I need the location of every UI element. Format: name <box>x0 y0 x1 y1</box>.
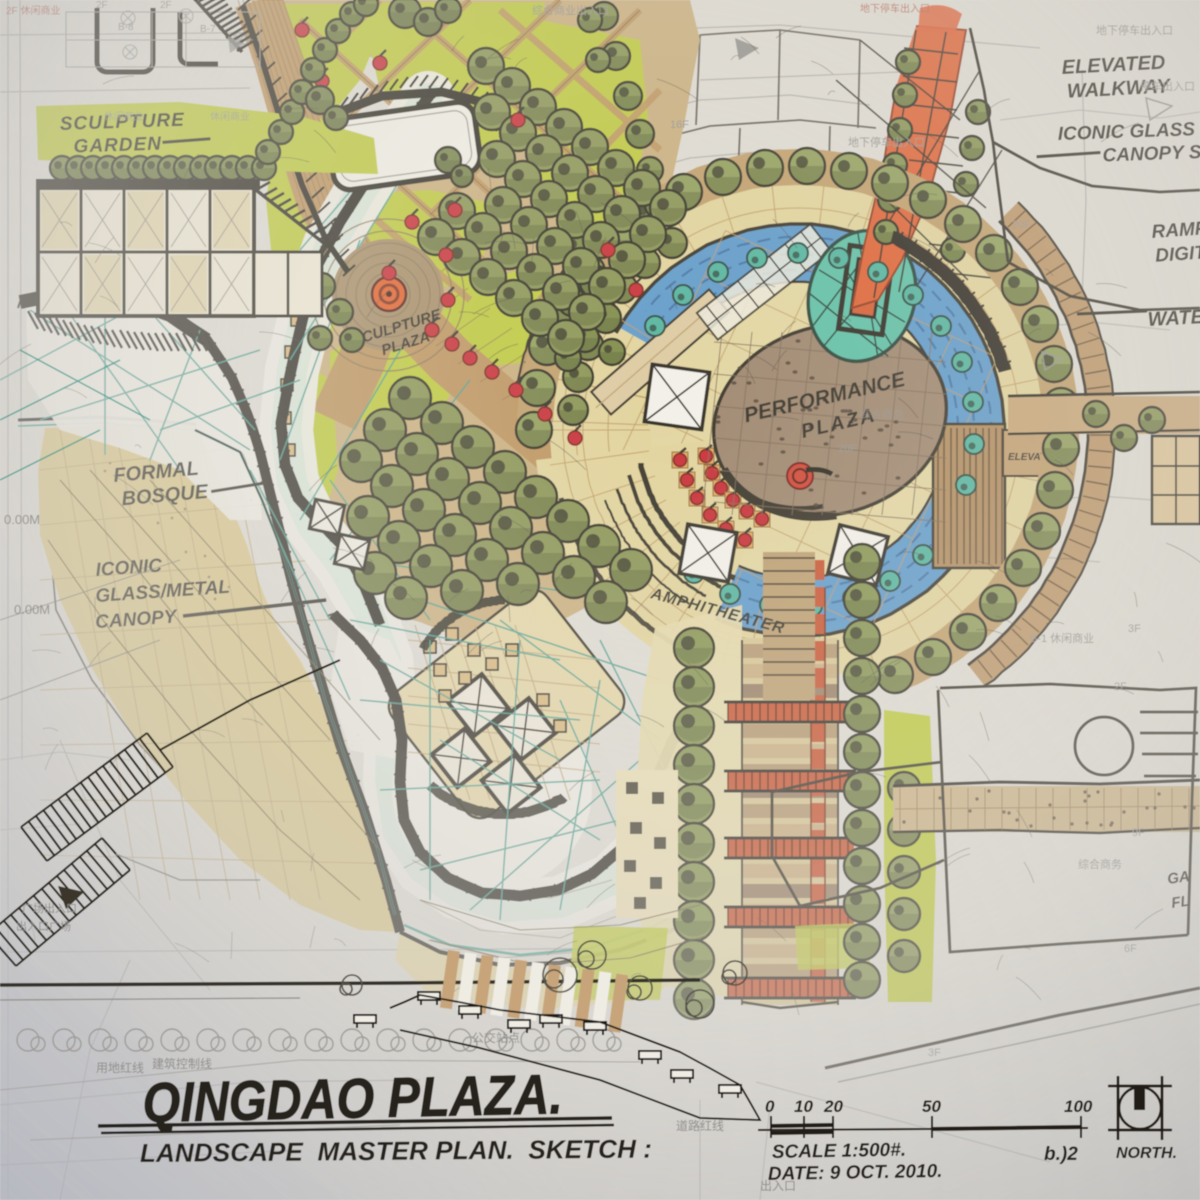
svg-text:b.)2: b.)2 <box>1044 1144 1078 1165</box>
svg-text:NORTH.: NORTH. <box>1116 1145 1177 1162</box>
svg-text:50: 50 <box>922 1097 941 1116</box>
svg-text:100: 100 <box>1064 1097 1093 1116</box>
svg-text:10: 10 <box>794 1097 813 1116</box>
svg-text:0.00M: 0.00M <box>14 602 50 617</box>
svg-text:DATE: 9 OCT. 2010.: DATE: 9 OCT. 2010. <box>768 1161 943 1185</box>
svg-text:道路红线: 道路红线 <box>676 1118 724 1133</box>
svg-text:广场出入口: 广场出入口 <box>22 901 77 915</box>
svg-text:0: 0 <box>765 1097 775 1116</box>
svg-text:公交站点: 公交站点 <box>472 1030 520 1045</box>
svg-text:0.00M: 0.00M <box>4 512 40 527</box>
svg-text:用地红线: 用地红线 <box>96 1060 144 1075</box>
svg-text:出入口广场: 出入口广场 <box>16 919 71 933</box>
svg-text:LANDSCAPE MASTER PLAN. SKETC: LANDSCAPE MASTER PLAN. SKETCH : <box>140 1134 652 1168</box>
svg-text:20: 20 <box>823 1097 843 1116</box>
svg-text:SCALE 1:500#.: SCALE 1:500#. <box>772 1140 906 1163</box>
